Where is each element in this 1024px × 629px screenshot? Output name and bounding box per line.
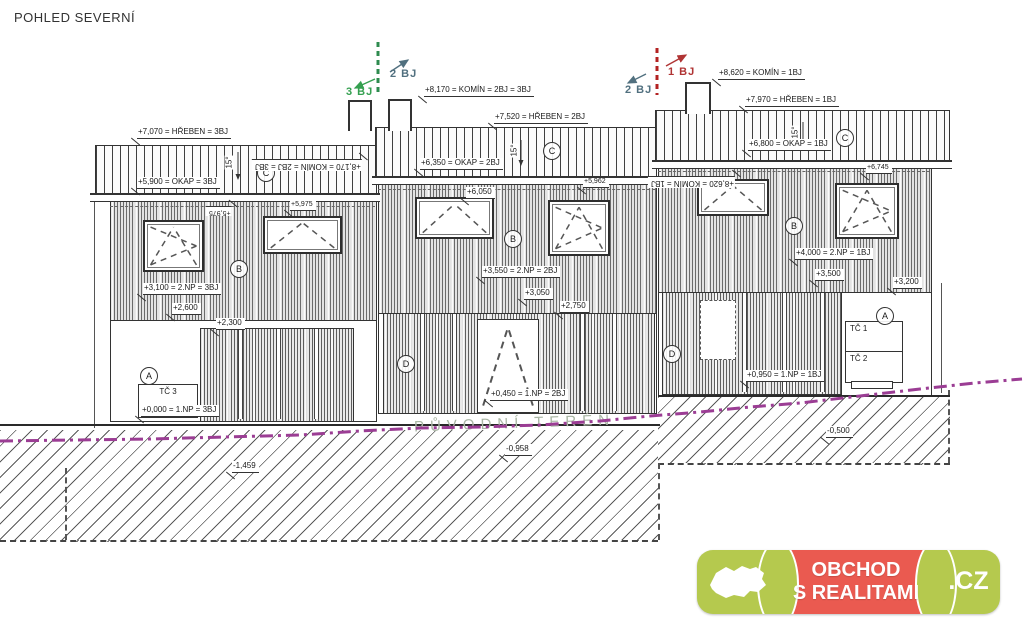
elevation-label: +6,050 [466,187,495,199]
elevation-label: +0,950 = 1.NP = 1BJ [746,370,824,382]
roof-slope-label: 15° [225,155,234,169]
window-tilt-turn [835,183,899,239]
dimension-chain-left [94,202,95,428]
heat-pump-tc1: TČ 1 [845,321,903,353]
elevation-label: +3,200 [893,277,922,289]
grid-bubble-d: D [663,345,681,363]
grid-bubble-a: A [876,307,894,325]
ground-dashed-edge [658,463,660,540]
elevation-label: +6,745 [866,164,892,174]
chimney [388,99,412,131]
ground-dashed-edge [948,390,950,463]
elevation-label: +0,450 = 1.NP = 2BJ [490,389,568,401]
chimney [685,82,711,114]
ground-hatch-left [0,430,658,542]
elevation-label: +2,600 [172,303,201,315]
elevation-label-flipped: +8,170 = KOMÍN = 2BJ = 3BJ [252,159,362,171]
window-opening-symbol [268,221,337,249]
window-awning [263,216,342,254]
elevation-label: -0,500 [826,426,853,438]
heat-pump-tc2: TČ 2 [845,351,903,383]
elevation-label: +2,750 [560,301,589,313]
panel-divider [238,329,243,419]
elevation-label: +3,500 [815,269,844,281]
heat-pump-label: TČ 3 [159,387,176,396]
watermark-line2: S REALITAMI [777,583,935,603]
heat-pump-plinth [851,381,893,389]
elevation-label: +7,070 = HŘEBEN = 3BJ [137,127,231,139]
watermark-cz: .CZ [937,567,1000,596]
elevation-label: +2,300 [216,318,245,330]
window-tilt-turn [143,220,204,272]
czech-map-icon [704,559,770,605]
eave-unit3 [90,193,380,202]
panel-divider [612,314,617,411]
elevation-label: +3,050 [524,288,553,300]
elevation-label-flipped: +8,620 = KOMÍN = 1BJ [648,176,735,188]
window-opening-symbol [840,188,894,234]
elevation-label: -0,958 [505,444,532,456]
unit-marker-2bj: 2 BJ [390,68,417,80]
ceiling-dashline-unit3 [110,206,375,207]
grid-bubble-b: B [230,260,248,278]
dashed-panel-unit1 [700,300,736,360]
panel-divider [452,314,457,411]
grid-bubble-b: B [504,230,522,248]
roof-unit1 [655,110,950,162]
elevation-label: +7,520 = HŘEBEN = 2BJ [494,112,588,124]
elevation-label: +7,970 = HŘEBEN = 1BJ [745,95,839,107]
eave-unit1 [652,160,952,169]
realty-watermark: OBCHOD S REALITAMI .CZ [697,550,1000,614]
window-opening-symbol [702,184,764,211]
drawing-title: POHLED SEVERNÍ [14,10,135,25]
dimension-chain-right [941,283,942,393]
window-opening-symbol [553,205,605,251]
panel-divider [580,314,585,411]
eave-unit2 [372,176,658,185]
elevation-label: -1,459 [232,461,259,473]
elevation-drawing: POHLED SEVERNÍ [0,0,1024,629]
panel-divider [314,329,319,419]
grid-bubble-c: C [836,129,854,147]
watermark-line1: OBCHOD [777,560,935,580]
panel-divider [276,329,281,419]
elevation-label: +5,962 [583,178,609,188]
window-opening-symbol [420,202,489,234]
grid-bubble-c: C [543,142,561,160]
window-tilt-turn [548,200,610,256]
elevation-label: +6,800 = OKAP = 1BJ [748,139,831,151]
elevation-label: +0,000 = 1.NP = 3BJ [141,405,219,417]
grid-bubble-b: B [785,217,803,235]
elevation-label-flipped: +5,975 [206,206,232,216]
ground-hatch-right [658,397,950,465]
unit-marker-3bj: 3 BJ [346,86,373,98]
window-awning [415,197,494,239]
roof-slope-label: 15° [510,143,519,157]
elevation-label: +8,170 = KOMÍN = 2BJ = 3BJ [424,85,534,97]
unit-marker-2bj: 2 BJ [625,84,652,96]
elevation-label: +5,900 = OKAP = 3BJ [137,177,220,189]
elevation-label: +3,100 = 2.NP = 3BJ [143,283,221,295]
ceiling-dashline-unit2 [378,189,655,190]
ground-dashed-edge [65,468,67,540]
elevation-label: +6,350 = OKAP = 2BJ [420,158,503,170]
panel-divider [420,314,425,411]
elevation-label: +8,620 = KOMÍN = 1BJ [718,68,805,80]
window-opening-symbol [148,225,199,267]
base-line-right [658,395,950,397]
elevation-label: +3,550 = 2.NP = 2BJ [482,266,560,278]
heat-pump-label: TČ 2 [850,354,867,363]
elevation-label: +5,975 [290,201,316,211]
grid-bubble-a: A [140,367,158,385]
unit-marker-1bj: 1 BJ [668,66,695,78]
elevation-label: +4,000 = 2.NP = 1BJ [795,248,873,260]
heat-pump-label: TČ 1 [850,324,867,333]
roof-slope-label: 15° [791,125,800,139]
grid-bubble-d: D [397,355,415,373]
chimney [348,100,372,131]
